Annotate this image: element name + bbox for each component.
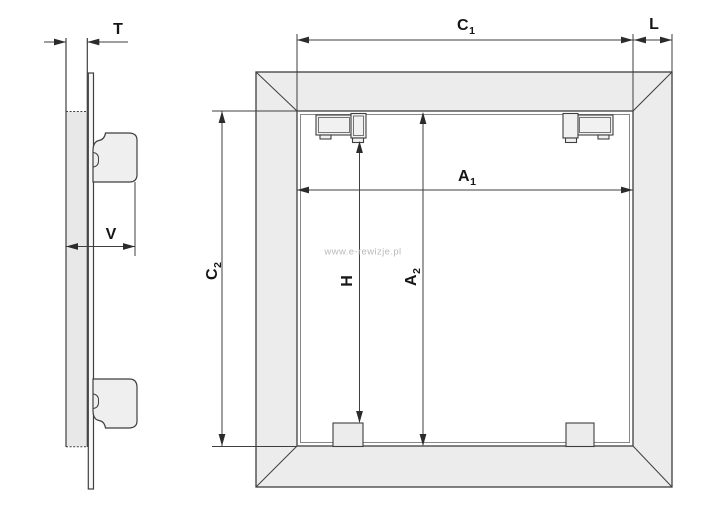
stop-right [566, 423, 594, 447]
arrowhead [123, 243, 135, 250]
dim-label-a1-subscript: 1 [470, 176, 476, 188]
door-panel-edge [88, 73, 93, 489]
dim-label-v-text: V [106, 226, 117, 243]
dim-label-h: H [340, 275, 356, 287]
dim-label-c2: C2 [205, 262, 221, 280]
dim-label-t: T [113, 22, 123, 38]
dim-label-a2-subscript: 2 [411, 268, 423, 274]
arrowhead [54, 39, 66, 46]
arrowhead [621, 37, 633, 44]
dim-label-v: V [106, 227, 117, 243]
dim-t [44, 39, 128, 46]
dim-label-t-text: T [113, 21, 123, 38]
arrowhead [219, 434, 226, 446]
side-view [66, 38, 137, 489]
dim-label-h-text: H [339, 275, 356, 287]
dim-label-c1-text: C [457, 17, 469, 34]
dim-label-c1-subscript: 1 [469, 25, 475, 37]
dim-label-a1: A1 [458, 169, 476, 185]
wall-section [66, 38, 87, 447]
front-view [256, 72, 672, 487]
stop-left [333, 423, 363, 447]
bottom-clip [93, 379, 137, 428]
arrowhead [660, 37, 672, 44]
watermark-text: www.e-rewizje.pl [324, 247, 401, 258]
arrowhead [297, 37, 309, 44]
dim-label-l: L [649, 17, 659, 33]
dim-label-a1-text: A [458, 168, 470, 185]
arrowhead [87, 39, 99, 46]
dim-label-c2-text: C [204, 268, 221, 280]
top-clip [93, 133, 137, 182]
dim-label-a2: A2 [404, 268, 420, 286]
arrowhead [219, 111, 226, 123]
arrowhead [634, 37, 646, 44]
dim-label-c1: C1 [457, 18, 475, 34]
dim-label-c2-subscript: 2 [212, 262, 224, 268]
dim-label-a2-text: A [403, 274, 420, 286]
dim-l [633, 34, 672, 72]
technical-drawing-canvas: T V C1 L A1 C2 H A2 www.e-rewizje.pl [0, 0, 720, 511]
dim-label-l-text: L [649, 16, 659, 33]
